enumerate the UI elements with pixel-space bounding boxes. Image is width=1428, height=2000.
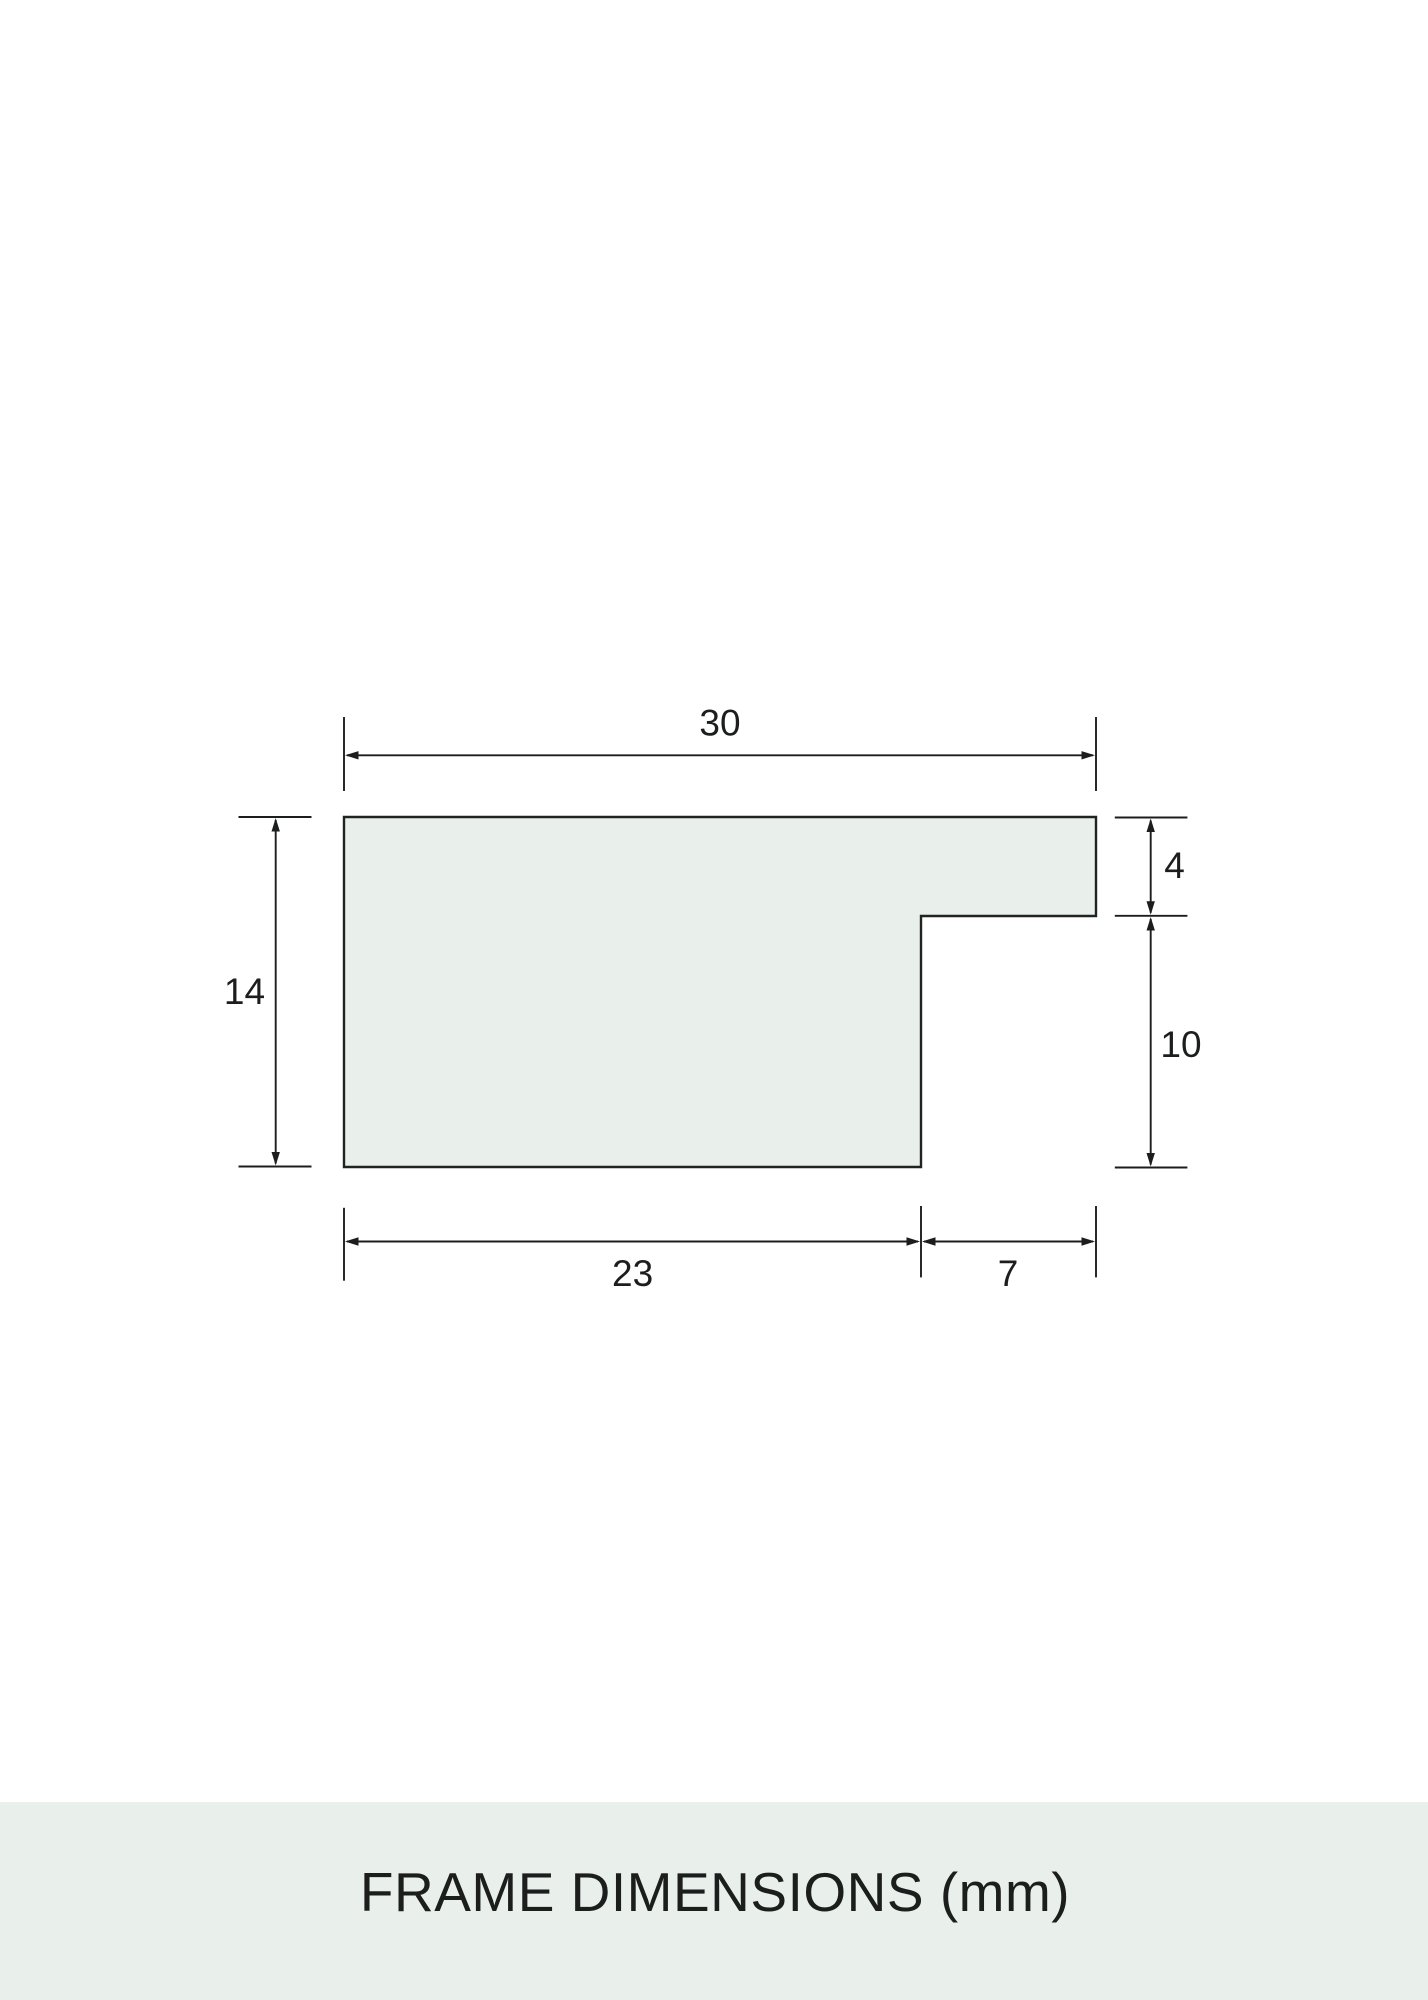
svg-text:23: 23 bbox=[612, 1253, 653, 1294]
svg-text:14: 14 bbox=[224, 971, 265, 1012]
svg-text:10: 10 bbox=[1160, 1024, 1201, 1065]
svg-text:FRAME DIMENSIONS (mm): FRAME DIMENSIONS (mm) bbox=[360, 1861, 1070, 1923]
svg-text:30: 30 bbox=[699, 703, 740, 744]
svg-text:4: 4 bbox=[1164, 845, 1185, 886]
svg-text:7: 7 bbox=[998, 1253, 1019, 1294]
